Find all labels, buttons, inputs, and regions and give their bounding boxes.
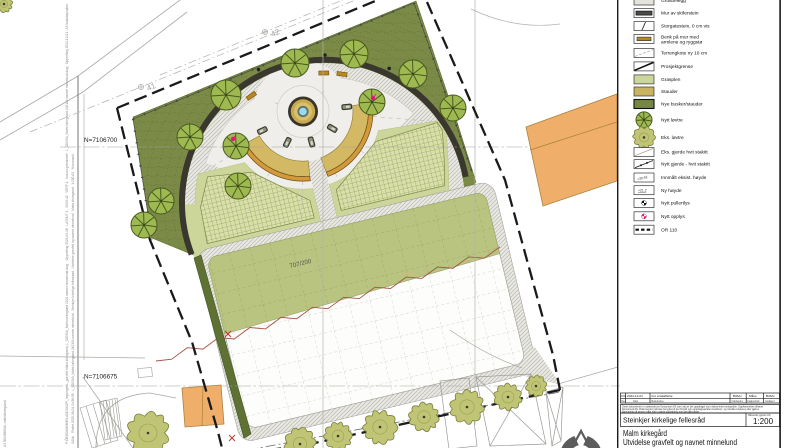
svg-text:Utvidelse gravfelt og navnet m: Utvidelse gravfelt og navnet minnelund [623,438,737,447]
svg-text:1:200: 1:200 [753,417,774,426]
svg-text:F01: F01 [621,394,627,398]
svg-text:Nytt gjerde - hvit stakitt: Nytt gjerde - hvit stakitt [661,162,710,168]
svg-text:Grusbelegg: Grusbelegg [661,0,686,4]
svg-text:Steinkjer kirkelige fellesråd: Steinkjer kirkelige fellesråd [623,416,705,425]
svg-text:Storgatestein, 0 cm vis: Storgatestein, 0 cm vis [661,24,710,30]
svg-text:Malm kirkegård: Malm kirkegård [623,429,667,438]
svg-text:A3 300466/MAL-malmkirkegaard: A3 300466/MAL-malmkirkegaard [3,400,7,447]
svg-text:Godkjent: Godkjent [765,400,775,403]
svg-text:tilgjengelig på annen måte ell: tilgjengelig på annen måte eller i størr… [622,411,700,414]
svg-text:Eks. gjerde hvit stakitt: Eks. gjerde hvit stakitt [661,150,708,156]
svg-text:Nytt løvtre: Nytt løvtre [661,118,683,124]
svg-text:N=7106675: N=7106675 [84,374,118,381]
svg-text:Stauder: Stauder [661,89,678,95]
svg-text:2024-12-01: 2024-12-01 [627,394,643,398]
svg-text:Fagkontroll: Fagkontroll [748,400,760,403]
svg-text:P:Ő8300466\BIM\LANDSKAP\_tegn: P:Ő8300466\BIM\LANDSKAP\_tegninger\L_gr… [64,4,69,444]
svg-text:Prosjektgrense: Prosjektgrense [661,64,693,70]
svg-text:N=7106700: N=7106700 [84,137,118,144]
svg-text:Terrengkote ny 10 cm: Terrengkote ny 10 cm [661,51,707,57]
svg-text:Grasplen: Grasplen [661,77,681,83]
svg-text:Rev.: Rev. [621,400,626,403]
svg-text:Nytt opplys: Nytt opplys [661,214,685,220]
svg-text:Beskrivelse: Beskrivelse [652,400,665,403]
svg-text:Dato: Dato [633,400,639,403]
svg-text:Nytt pullertlys: Nytt pullertlys [661,201,690,207]
svg-text:BAMu: BAMu [733,394,742,398]
svg-text:OR 110: OR 110 [661,227,678,233]
svg-text:SANu Plottet 2025-06-04 14:3: SANu Plottet 2025-06-04 14:36:08 L_02039… [71,154,75,444]
svg-text:Ny høyde: Ny høyde [661,188,682,194]
svg-text:Benk på mur med: Benk på mur med [661,33,699,40]
svg-text:For anskaffelse: For anskaffelse [652,394,673,398]
svg-text:BAMu: BAMu [766,394,775,398]
svg-text:Mur av skiferstein: Mur av skiferstein [661,11,699,17]
svg-text:Nye busker/stauder: Nye busker/stauder [661,102,703,108]
svg-text:Utarbeidet: Utarbeidet [732,400,743,403]
svg-text:+21.2: +21.2 [638,189,647,193]
svg-text:Måne: Måne [749,394,757,398]
svg-text:armlene og ryggstø: armlene og ryggstø [661,39,702,45]
svg-text:Innmålt eksist. høyde: Innmålt eksist. høyde [661,174,707,181]
svg-text:Eks. løvtre: Eks. løvtre [661,135,684,141]
